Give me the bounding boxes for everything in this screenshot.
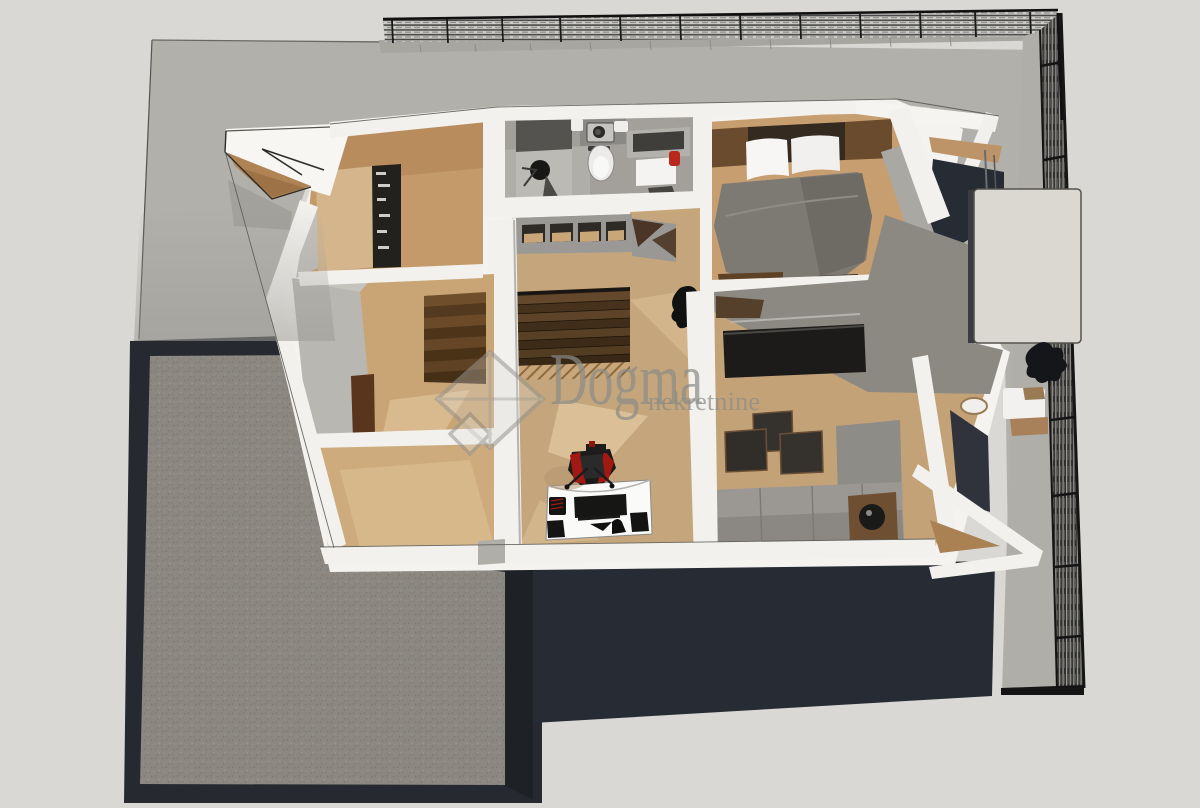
svg-text:nekretnine: nekretnine (648, 387, 760, 416)
